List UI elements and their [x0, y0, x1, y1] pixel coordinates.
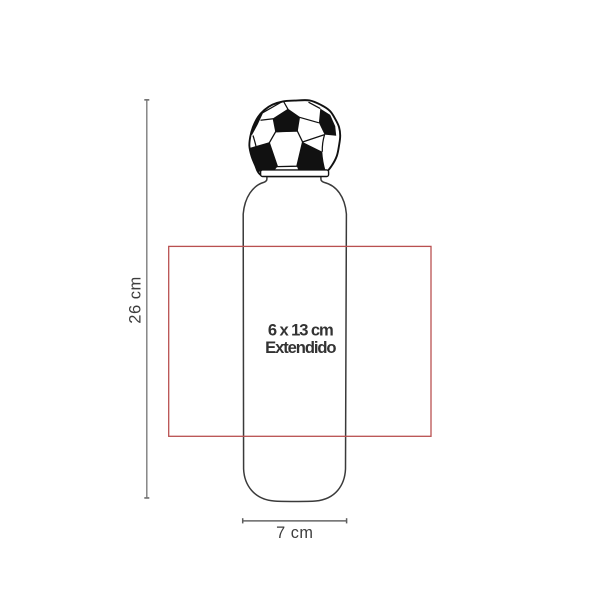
svg-text:7 cm: 7 cm [276, 524, 313, 542]
svg-text:6 x 13 cm: 6 x 13 cm [268, 321, 333, 340]
svg-text:Extendido: Extendido [265, 338, 336, 357]
svg-text:26 cm: 26 cm [127, 276, 145, 323]
